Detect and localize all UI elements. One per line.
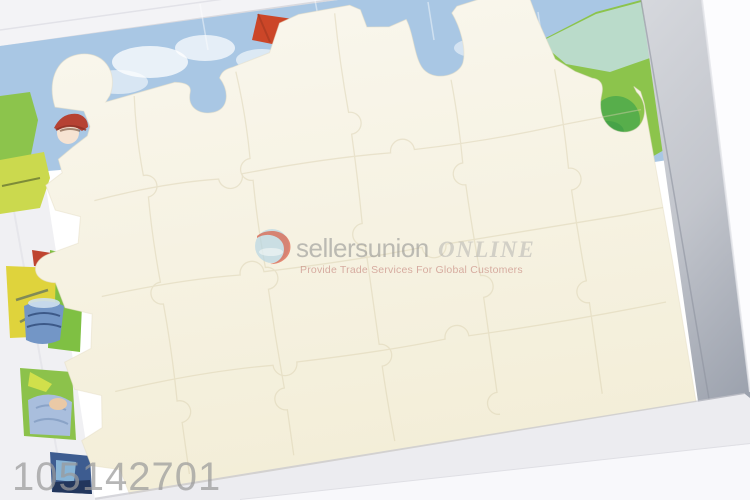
child-piece (20, 368, 76, 440)
puzzle-product-photo: sellersunion ONLINE Provide Trade Servic… (0, 0, 750, 500)
boat-highlight (28, 298, 60, 308)
logo-highlight (259, 248, 283, 256)
photo-canvas: sellersunion ONLINE Provide Trade Servic… (0, 0, 750, 500)
cloud (175, 35, 235, 61)
product-id: 105142701 (12, 455, 221, 499)
watermark-brand: sellersunion (296, 233, 429, 263)
watermark-tagline: Provide Trade Services For Global Custom… (300, 264, 523, 276)
hand-skin (49, 398, 67, 410)
watermark-brand-suffix: ONLINE (438, 237, 535, 262)
